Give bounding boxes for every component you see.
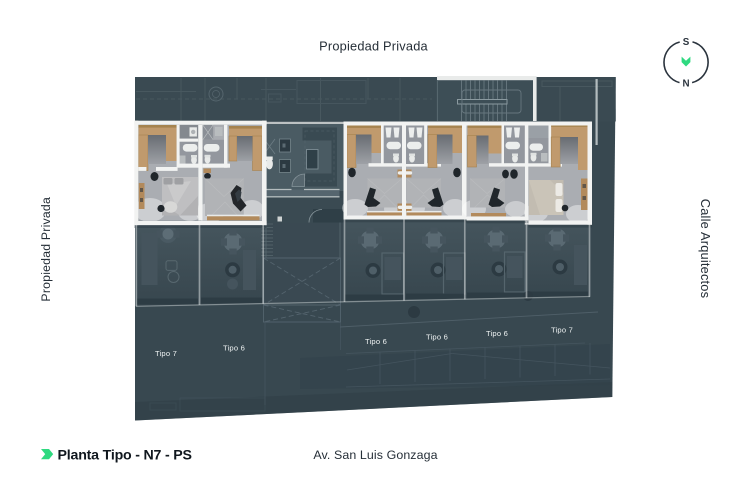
svg-text:Tipo 6: Tipo 6 [223, 344, 245, 353]
svg-text:Tipo 6: Tipo 6 [365, 337, 387, 346]
svg-text:Tipo 6: Tipo 6 [486, 329, 508, 338]
svg-text:Calle Arquitectos: Calle Arquitectos [698, 199, 713, 298]
svg-text:Tipo 7: Tipo 7 [155, 349, 177, 358]
svg-text:Propiedad Privada: Propiedad Privada [39, 197, 53, 302]
svg-text:N: N [682, 79, 689, 90]
svg-text:Planta Tipo - N7 - PS: Planta Tipo - N7 - PS [58, 448, 192, 464]
svg-text:Tipo 6: Tipo 6 [426, 333, 448, 342]
svg-text:Propiedad Privada: Propiedad Privada [319, 38, 428, 53]
svg-text:Tipo 7: Tipo 7 [551, 326, 573, 335]
svg-text:S: S [683, 37, 690, 48]
svg-text:Av. San Luis Gonzaga: Av. San Luis Gonzaga [313, 448, 437, 462]
